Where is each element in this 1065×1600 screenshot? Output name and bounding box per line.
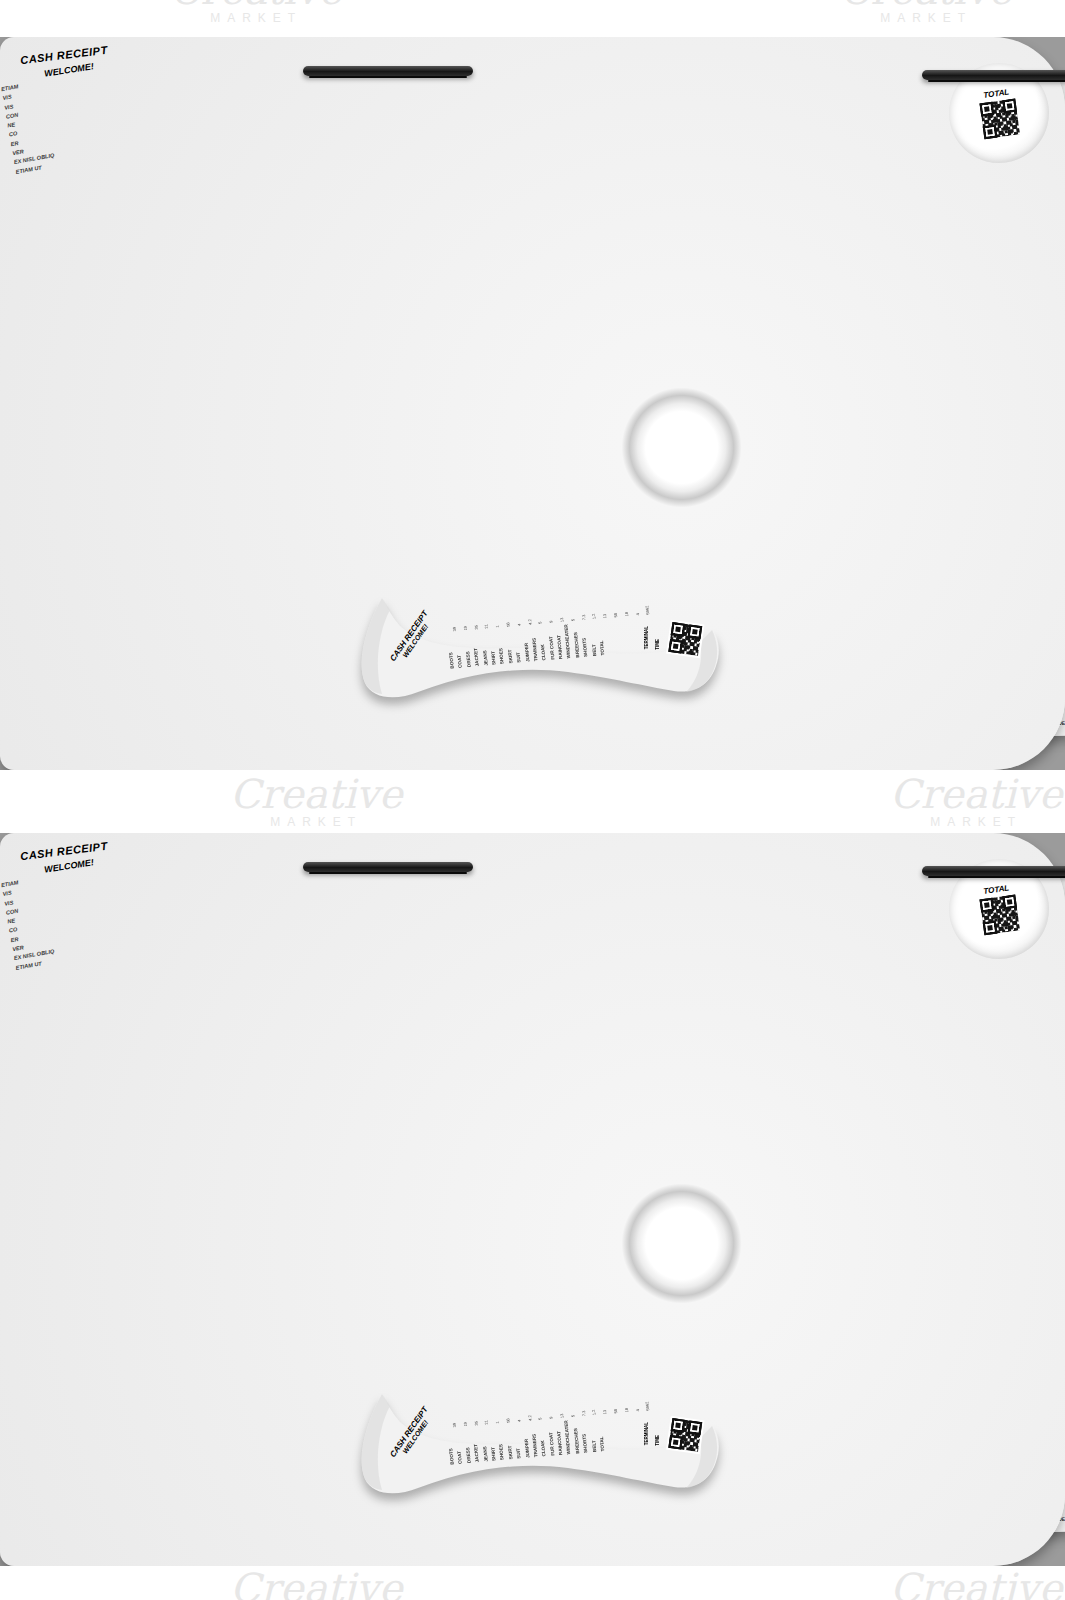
item-label: WINDCHEATER bbox=[564, 1420, 572, 1454]
item-label: TRAINERS bbox=[530, 627, 538, 661]
qr-code bbox=[980, 895, 1021, 936]
item-value: 4 bbox=[515, 1409, 521, 1422]
item-value: 13 bbox=[601, 1401, 607, 1414]
item-value: 4.2 bbox=[526, 1408, 532, 1421]
item-value: 58 bbox=[505, 1410, 511, 1423]
item-label: DRESS bbox=[464, 633, 472, 667]
item-label: SKIRT bbox=[505, 629, 513, 663]
item-value: 13 bbox=[601, 605, 607, 618]
item-label: SHIRT bbox=[489, 631, 497, 665]
item-label: JUMPER bbox=[522, 1424, 530, 1458]
watermark: Creative MARKET bbox=[170, 0, 342, 24]
item-value: 35 bbox=[472, 616, 478, 629]
printer-bar bbox=[303, 862, 473, 872]
receipt-rolled: CASH RECEIPT WELCOME! ETIAMVISVISCONNECO… bbox=[0, 255, 156, 405]
qr-code bbox=[980, 99, 1021, 140]
item-label: CLOAK bbox=[539, 626, 547, 660]
item-label: SHOES bbox=[497, 1426, 505, 1460]
item-label: SUIT bbox=[514, 1425, 522, 1459]
item-value: 4 bbox=[515, 613, 521, 626]
item-value: 5 bbox=[537, 1407, 543, 1420]
item-label: FUR COAT bbox=[547, 626, 555, 660]
item-label: JUMPER bbox=[522, 628, 530, 662]
time-label: TIME bbox=[655, 639, 660, 650]
terminal-label: TERMINAL bbox=[644, 1422, 649, 1445]
item-value: 13 bbox=[558, 1405, 564, 1418]
item-value: 58 bbox=[612, 604, 618, 617]
wavy-terminal: TERMINAL TIME bbox=[644, 626, 660, 653]
item-value: 5 bbox=[569, 1404, 575, 1417]
total-label: TOTAL bbox=[983, 883, 1010, 896]
item-value: 5 bbox=[569, 608, 575, 621]
item-value: 4.2 bbox=[526, 612, 532, 625]
watermark: Creative MARKET bbox=[840, 0, 1012, 24]
watermark: Creative MARKET bbox=[890, 1568, 1062, 1600]
white-band-top: Creative MARKET Creative MARKET bbox=[0, 0, 1065, 37]
welcome-label: WELCOME! bbox=[44, 857, 95, 875]
item-value: 19 bbox=[462, 1413, 468, 1426]
item-value: 1 bbox=[494, 1411, 500, 1424]
receipts-panel-top: Creative MARKET Creative MARKET MAIN TOW… bbox=[0, 37, 1065, 770]
receipt-title: CASH RECEIPT bbox=[20, 840, 109, 863]
watermark: Creative MARKET bbox=[230, 1568, 402, 1600]
qr-code bbox=[668, 622, 702, 656]
item-label: SKIRT bbox=[505, 1425, 513, 1459]
receipt-rolled: CASH RECEIPT WELCOME! ETIAMVISVISCONNECO… bbox=[0, 1051, 156, 1201]
item-value: 19 bbox=[462, 617, 468, 630]
item-label: JACKET bbox=[472, 632, 480, 666]
watermark-script: Creative bbox=[170, 0, 342, 10]
qr-code bbox=[668, 1418, 702, 1452]
item-label: FUR COAT bbox=[547, 1422, 555, 1456]
item-value: 5962 bbox=[644, 601, 650, 614]
watermark: Creative MARKET bbox=[230, 774, 402, 828]
item-label: WINDCHEATER bbox=[564, 624, 572, 658]
item-value: 5962 bbox=[644, 1397, 650, 1410]
item-value: 7.3 bbox=[580, 1403, 586, 1416]
printer-bar bbox=[303, 66, 473, 76]
receipt-wavy: CASH RECEIPT WELCOME! 3919352115844.2591… bbox=[352, 588, 724, 712]
item-value: 4 bbox=[634, 602, 640, 615]
item-label: RAINCOAT bbox=[555, 625, 563, 659]
white-band-bottom: Creative MARKET Creative MARKET bbox=[0, 1566, 1065, 1600]
item-label: TRAINERS bbox=[530, 1423, 538, 1457]
item-value: 10 bbox=[623, 1399, 629, 1412]
printer-bar bbox=[922, 866, 1065, 876]
item-value: 7.3 bbox=[580, 607, 586, 620]
item-label: BELT bbox=[589, 622, 597, 656]
item-label: CLOAK bbox=[539, 1422, 547, 1456]
total-label: TOTAL bbox=[983, 87, 1010, 100]
item-value: 21 bbox=[483, 615, 489, 628]
item-label: COAT bbox=[455, 1430, 463, 1464]
item-value: 58 bbox=[612, 1400, 618, 1413]
time-label: TIME bbox=[655, 1435, 660, 1446]
item-value: 10 bbox=[623, 603, 629, 616]
item-list: ETIAMVISVISCONNECOERVEREX NISL OBLIQETIA… bbox=[0, 874, 56, 971]
item-value: 9 bbox=[548, 1406, 554, 1419]
item-label: SHIRT bbox=[489, 1427, 497, 1461]
watermark: Creative MARKET bbox=[890, 774, 1062, 828]
item-label: BELT bbox=[589, 1418, 597, 1452]
item-label: BREECHES bbox=[572, 623, 580, 657]
item-label: SHORTS bbox=[581, 1419, 589, 1453]
white-band-middle: Creative MARKET Creative MARKET bbox=[0, 770, 1065, 833]
item-value: 1.2 bbox=[591, 1402, 597, 1415]
item-value: 1.2 bbox=[591, 606, 597, 619]
item-value: 35 bbox=[472, 1412, 478, 1425]
item-label: DRESS bbox=[464, 1429, 472, 1463]
item-value: 21 bbox=[483, 1411, 489, 1424]
item-label: BREECHES bbox=[572, 1419, 580, 1453]
item-label: RAINCOAT bbox=[555, 1421, 563, 1455]
item-label: JEANS bbox=[480, 632, 488, 666]
item-value: 13 bbox=[558, 609, 564, 622]
item-label: JEANS bbox=[480, 1428, 488, 1462]
item-label: SHOES bbox=[497, 630, 505, 664]
receipt-title: CASH RECEIPT bbox=[20, 44, 109, 67]
terminal-label: TERMINAL bbox=[644, 626, 649, 649]
item-label: COAT bbox=[455, 634, 463, 668]
receipt-wavy: CASH RECEIPT WELCOME! 3919352115844.2591… bbox=[352, 1384, 724, 1508]
item-label: JACKET bbox=[472, 1428, 480, 1462]
printer-bar bbox=[922, 70, 1065, 80]
item-value: 1 bbox=[494, 615, 500, 628]
item-value: 5 bbox=[537, 611, 543, 624]
receipts-panel-bottom: Creative MARKET Creative MARKET MAIN TOW… bbox=[0, 833, 1065, 1566]
item-list: ETIAMVISVISCONNECOERVEREX NISL OBLIQETIA… bbox=[0, 78, 56, 175]
item-label: SHORTS bbox=[581, 623, 589, 657]
welcome-label: WELCOME! bbox=[44, 61, 95, 79]
wavy-terminal: TERMINAL TIME bbox=[644, 1422, 660, 1449]
receipt-mockup-sheet: Creative MARKET Creative MARKET Creative… bbox=[0, 0, 1065, 1600]
item-value: 4 bbox=[634, 1398, 640, 1411]
item-value: 9 bbox=[548, 610, 554, 623]
item-value: 58 bbox=[505, 614, 511, 627]
item-value: 39 bbox=[451, 1414, 457, 1427]
item-label: SUIT bbox=[514, 629, 522, 663]
item-value: 39 bbox=[451, 618, 457, 631]
watermark-caps: MARKET bbox=[170, 12, 342, 24]
